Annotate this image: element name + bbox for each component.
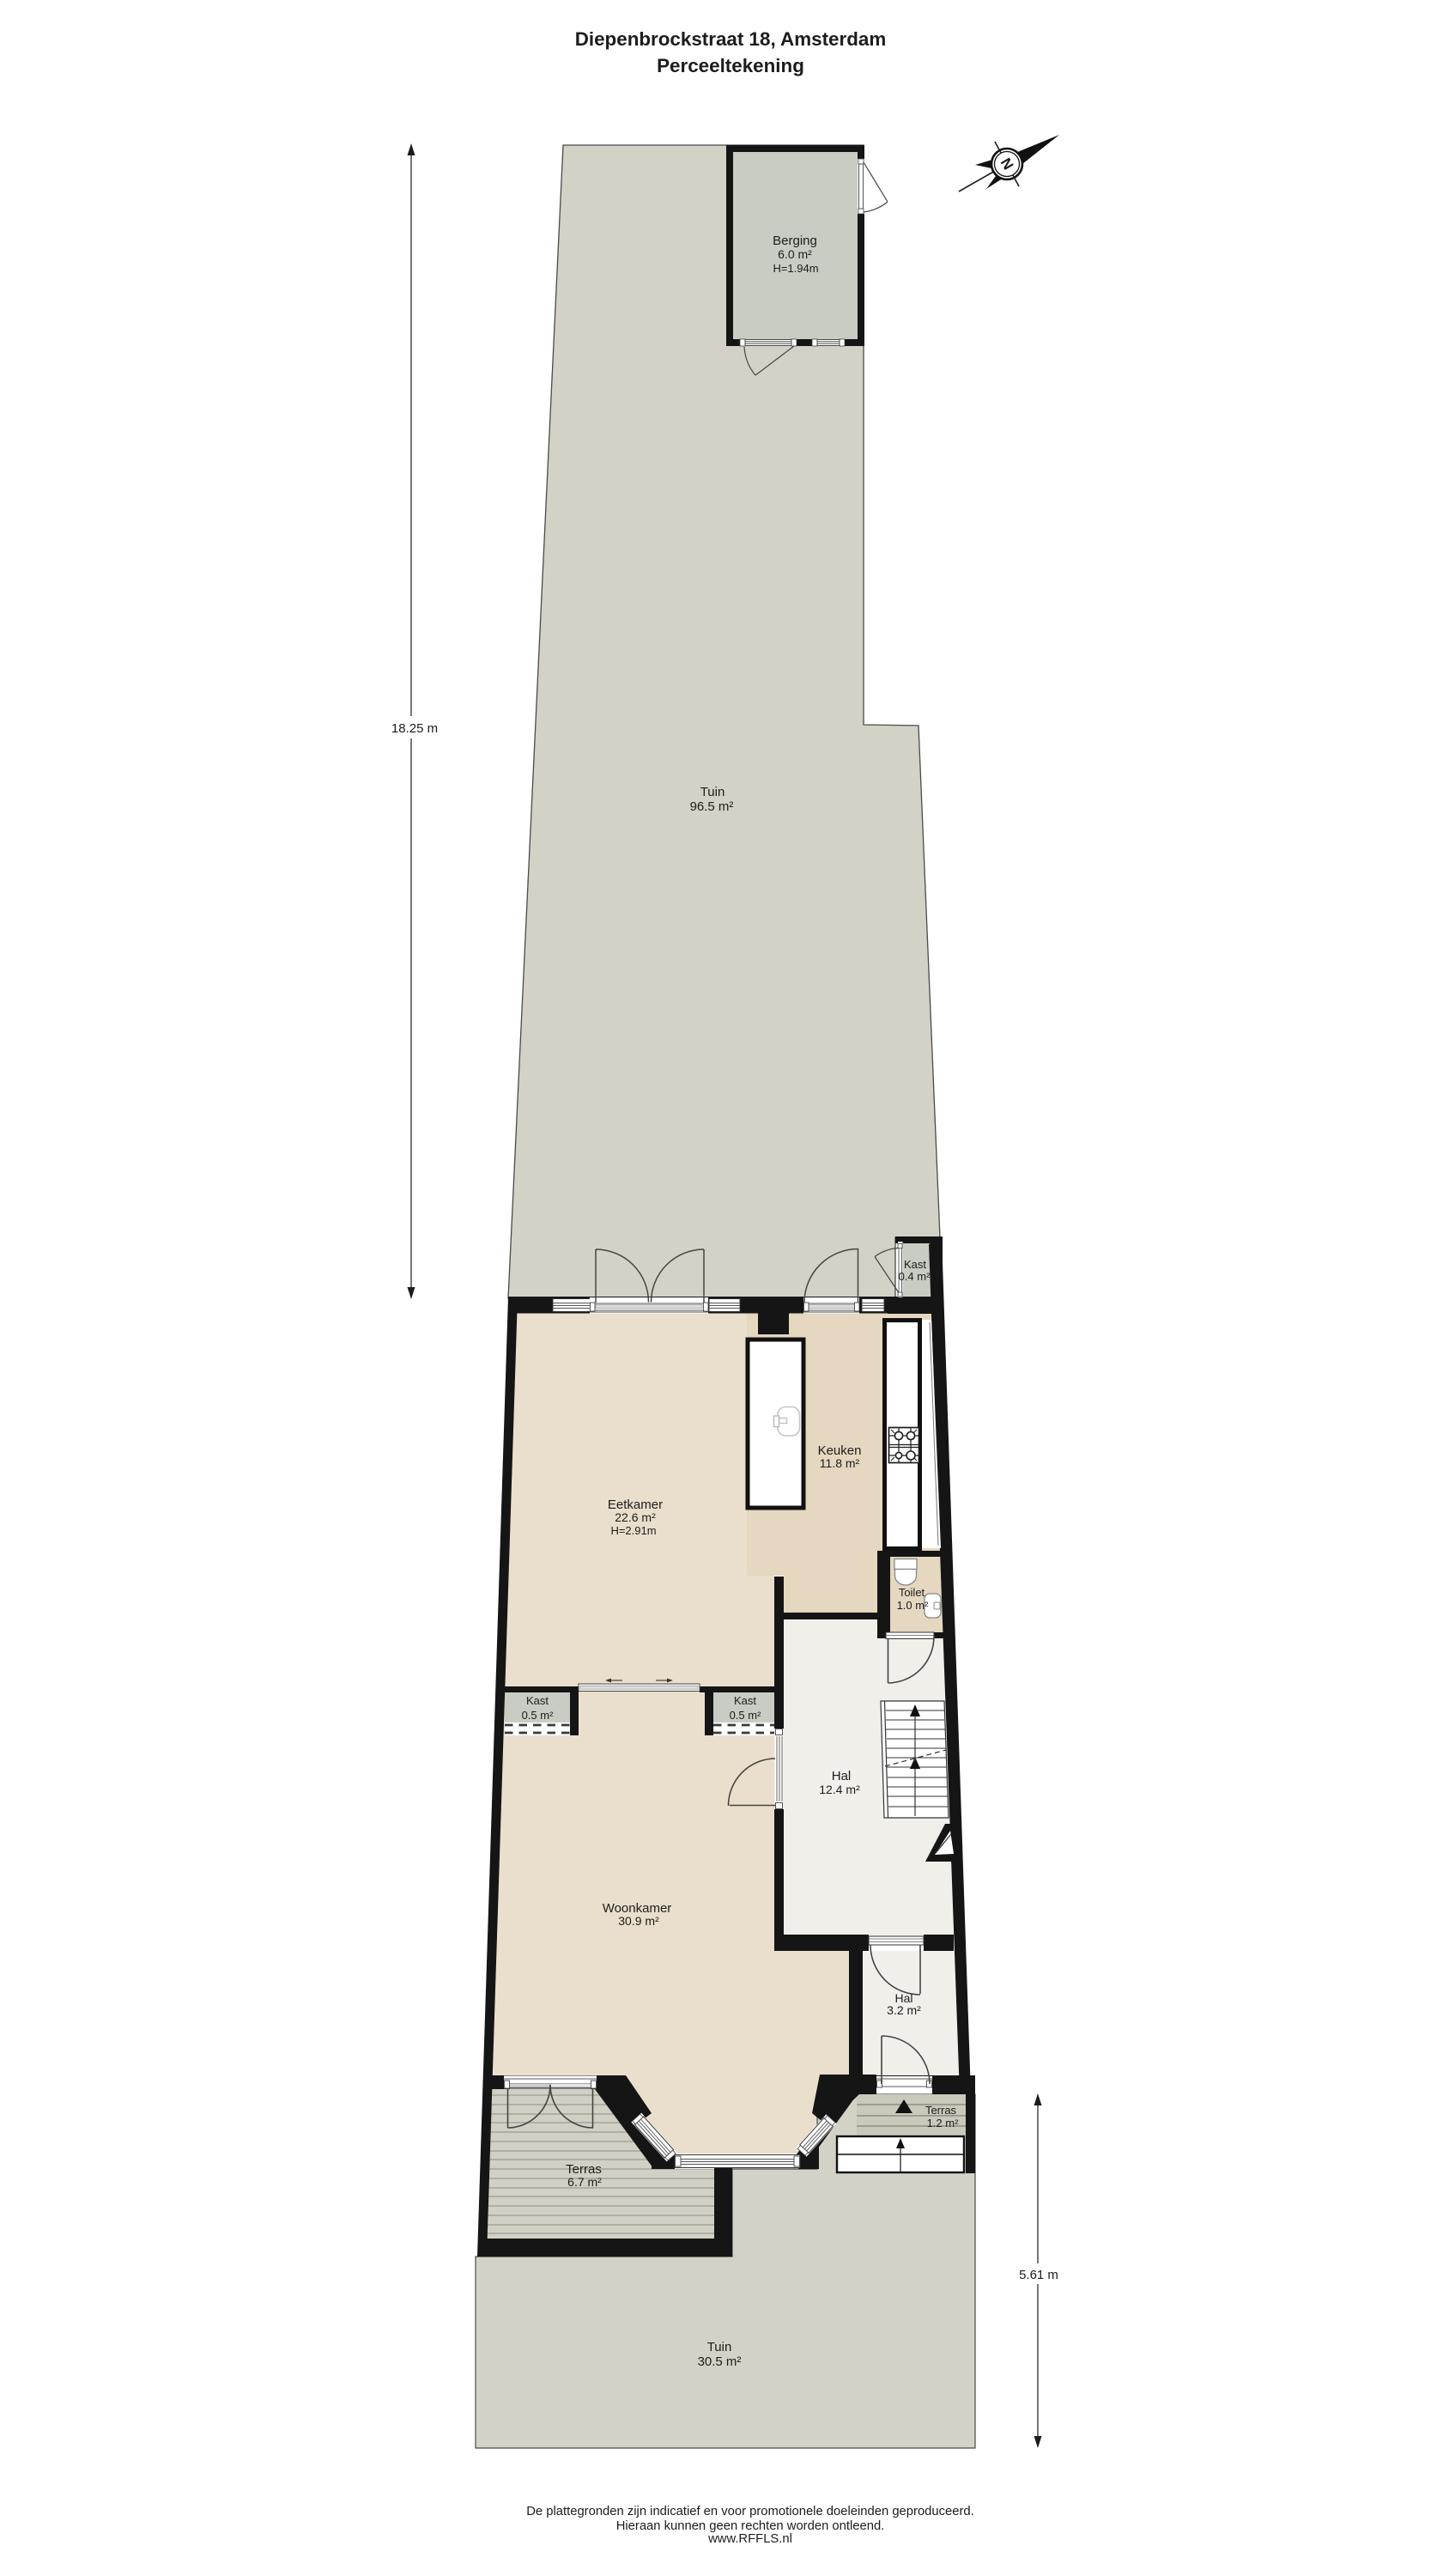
svg-text:1.0 m²: 1.0 m² [897,1599,930,1612]
svg-text:Hieraan kunnen geen rechten wo: Hieraan kunnen geen rechten worden ontle… [616,2519,885,2533]
svg-text:0.5 m²: 0.5 m² [730,1709,762,1722]
svg-text:Berging: Berging [773,234,817,248]
svg-text:18.25 m: 18.25 m [391,721,438,736]
svg-text:96.5 m²: 96.5 m² [690,799,734,814]
svg-text:Tuin: Tuin [707,2340,732,2354]
svg-text:30.9 m²: 30.9 m² [618,1914,659,1928]
svg-text:Hal: Hal [832,1769,852,1783]
svg-text:5.61 m: 5.61 m [1019,2268,1058,2282]
svg-text:Tuin: Tuin [700,785,725,799]
svg-text:12.4 m²: 12.4 m² [819,1783,860,1796]
svg-text:Kast: Kast [904,1258,926,1271]
svg-text:1.2 m²: 1.2 m² [927,2117,960,2129]
svg-text:Kast: Kast [526,1694,549,1707]
svg-text:Diepenbrockstraat 18, Amsterda: Diepenbrockstraat 18, Amsterdam [575,28,887,50]
svg-text:6.0 m²: 6.0 m² [778,247,812,261]
svg-text:22.6 m²: 22.6 m² [615,1510,656,1524]
svg-text:Kast: Kast [734,1694,756,1707]
svg-text:De plattegronden zijn indicati: De plattegronden zijn indicatief en voor… [526,2505,974,2518]
svg-text:Terras: Terras [925,2104,957,2117]
svg-text:Perceeltekening: Perceeltekening [657,55,804,76]
svg-text:H=2.91m: H=2.91m [610,1524,656,1537]
svg-text:11.8 m²: 11.8 m² [820,1456,860,1470]
svg-text:Toilet: Toilet [899,1586,925,1599]
svg-text:3.2 m²: 3.2 m² [887,2003,921,2017]
svg-text:0.5 m²: 0.5 m² [522,1709,555,1722]
svg-text:0.4 m²: 0.4 m² [899,1270,931,1283]
svg-text:6.7 m²: 6.7 m² [567,2175,602,2189]
svg-text:H=1.94m: H=1.94m [773,262,818,275]
svg-text:www.RFFLS.nl: www.RFFLS.nl [707,2532,792,2546]
svg-text:30.5 m²: 30.5 m² [698,2354,742,2369]
